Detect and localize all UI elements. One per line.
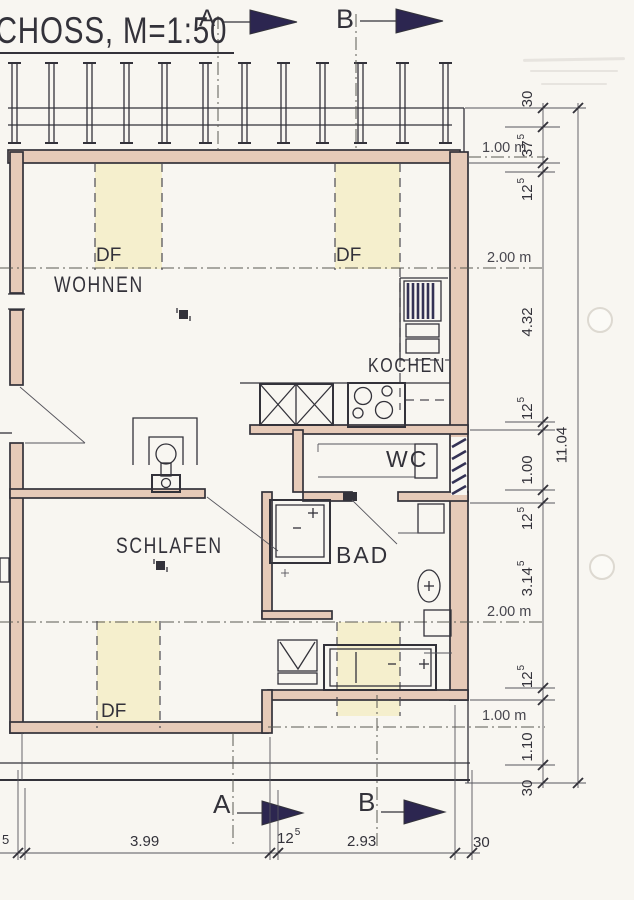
room-label-kochen: KOCHEN [368,355,446,378]
dim-bottom-4: 30 [473,834,490,851]
floorplan-linework [0,0,634,900]
scan-smudge-3 [541,83,607,85]
dim-right-7: 3.145 [518,562,536,597]
roof-window-label-3: DF [101,701,126,723]
section-arrow-bottom-b [381,800,445,824]
floorplan-sheet: CHOSS, M=1:50 A B A B WOHNEN KOCHEN WC S… [0,0,634,900]
dim-right-2: 125 [518,179,536,201]
dim-bottom-3: 2.93 [347,833,376,850]
section-label-bottom-a: A [213,789,230,820]
height-label-2m-top: 2.00 m [487,250,531,266]
room-label-bad: BAD [336,542,389,569]
dim-right-6: 125 [518,508,536,530]
dim-right-8: 125 [518,666,536,688]
dim-right-total: 11.04 [554,427,571,463]
dim-right-1: 375 [518,135,536,157]
punch-hole-bottom [589,554,615,580]
height-label-1m-bottom: 1.00 m [482,708,526,724]
scan-smudge-2 [530,70,618,72]
room-label-wc: WC [386,446,428,473]
height-label-2m-bottom: 2.00 m [487,604,531,620]
kitchen-fixtures [240,278,450,427]
punch-hole-top [587,307,613,333]
roof-window-label-2: DF [336,245,361,267]
right-wall-window [451,437,467,495]
dim-right-5: 1.00 [518,455,536,484]
dim-bottom-1: 3.99 [130,833,159,850]
dim-right-4: 125 [518,398,536,420]
room-label-schlafen: SCHLAFEN [116,533,223,559]
dim-bottom-2: 125 [277,829,299,847]
room-label-wohnen: WOHNEN [54,272,144,298]
chimney-stove [133,418,197,492]
roof-window-label-1: DF [96,245,121,267]
left-window-ticks [8,294,25,309]
door-swings [20,387,397,551]
section-label-bottom-b: B [358,787,375,818]
dim-right-9: 1.10 [518,732,536,761]
section-label-top-b: B [336,4,354,35]
dim-right-3: 4.32 [518,307,536,336]
dim-right-0: 30 [518,91,536,108]
dim-right-10: 30 [518,780,536,797]
section-label-top-a: A [199,5,215,33]
balcony-railing [8,63,464,152]
dim-bottom-0: 5 [2,832,9,847]
section-arrow-top-b [360,9,443,33]
